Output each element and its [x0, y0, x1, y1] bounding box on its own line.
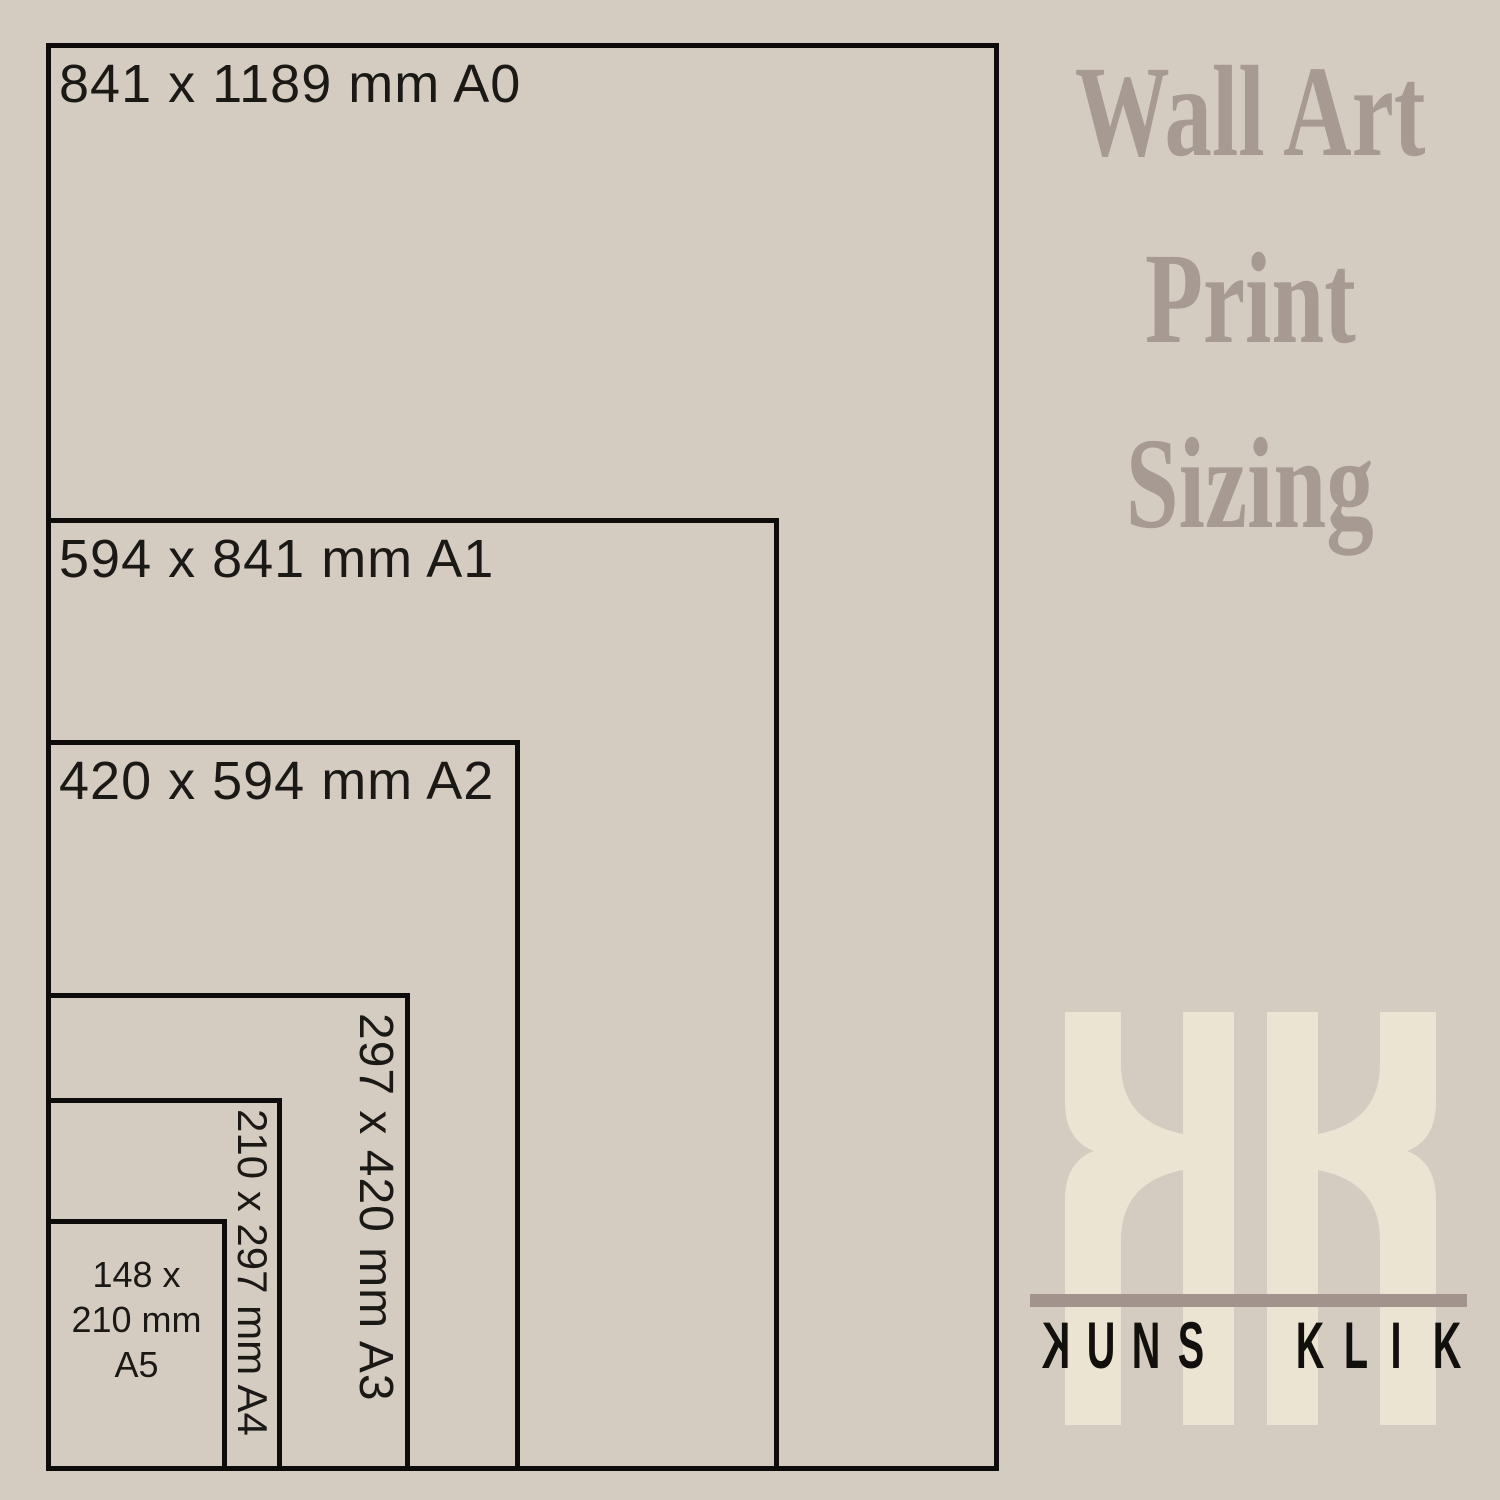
- size-label-a5-line3: A5: [114, 1342, 158, 1387]
- brand-logo: K U N S K L I K: [1020, 1000, 1480, 1440]
- wordmark-letter-l: L: [1344, 1309, 1368, 1383]
- wordmark-letter-k3: K: [1433, 1309, 1462, 1383]
- page-title-text-1: Wall Art: [1075, 47, 1426, 177]
- size-label-a4: 210 x 297 mm A4: [227, 1109, 277, 1436]
- size-label-a0: 841 x 1189 mm A0: [51, 48, 994, 114]
- page-title-text-2: Print: [1145, 234, 1356, 364]
- wordmark-letter-k2: K: [1296, 1309, 1325, 1383]
- page-title-line-2: Print: [1000, 234, 1500, 364]
- wordmark-letter-k-mirrored: K: [1042, 1309, 1071, 1383]
- size-label-a5: 148 x 210 mm A5: [51, 1224, 222, 1387]
- wordmark-letter-s: S: [1178, 1309, 1204, 1383]
- wordmark-letter-u: U: [1087, 1309, 1116, 1383]
- page-title-line-1: Wall Art: [1000, 47, 1500, 177]
- size-label-a2: 420 x 594 mm A2: [51, 745, 515, 811]
- size-label-a5-line2: 210 mm: [71, 1297, 201, 1342]
- wordmark-letter-n: N: [1132, 1309, 1161, 1383]
- logo-divider-bar: [1030, 1294, 1467, 1307]
- logo-wordmark: K U N S K L I K: [1042, 1309, 1462, 1383]
- page-title-line-3: Sizing: [1000, 419, 1500, 549]
- wordmark-letter-i: I: [1390, 1309, 1401, 1383]
- wall-art-print-sizing-graphic: 841 x 1189 mm A0 594 x 841 mm A1 420 x 5…: [0, 0, 1500, 1500]
- page-title-text-3: Sizing: [1126, 419, 1374, 549]
- size-box-a5: 148 x 210 mm A5: [46, 1219, 227, 1471]
- size-label-a1: 594 x 841 mm A1: [51, 523, 774, 589]
- size-label-a5-line1: 148 x: [92, 1252, 180, 1297]
- size-label-a3: 297 x 420 mm A3: [346, 1013, 404, 1402]
